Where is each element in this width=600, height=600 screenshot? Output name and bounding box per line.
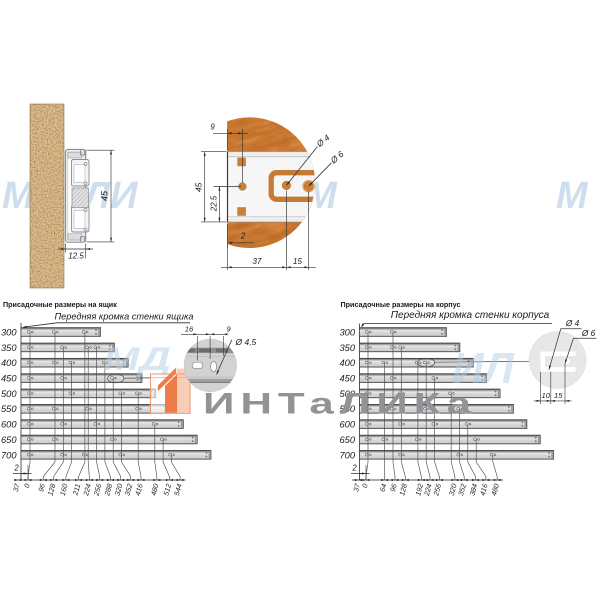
svg-text:300: 300 <box>1 328 17 338</box>
svg-text:9: 9 <box>226 324 231 333</box>
svg-text:Передняя кромка стенки корпуса: Передняя кромка стенки корпуса <box>391 310 550 321</box>
svg-text:128: 128 <box>46 483 58 497</box>
svg-text:352: 352 <box>456 483 468 497</box>
svg-text:9: 9 <box>210 123 215 132</box>
svg-text:22.5: 22.5 <box>209 195 218 212</box>
svg-text:450: 450 <box>1 374 17 384</box>
svg-text:0: 0 <box>360 483 370 489</box>
svg-text:400: 400 <box>339 358 355 368</box>
svg-text:416: 416 <box>133 483 145 497</box>
svg-text:416: 416 <box>478 483 490 497</box>
svg-text:350: 350 <box>339 343 355 353</box>
svg-text:Ø 6: Ø 6 <box>581 328 596 338</box>
svg-text:М: М <box>556 175 589 217</box>
svg-text:Ø 4: Ø 4 <box>565 318 580 328</box>
svg-text:600: 600 <box>1 420 17 430</box>
svg-text:37: 37 <box>11 482 22 493</box>
svg-text:10: 10 <box>541 391 550 400</box>
svg-text:96: 96 <box>36 483 47 493</box>
svg-text:37: 37 <box>253 257 262 266</box>
svg-text:12.5: 12.5 <box>68 252 84 261</box>
svg-text:224: 224 <box>81 483 93 498</box>
svg-text:2: 2 <box>240 231 246 240</box>
svg-text:350: 350 <box>1 343 17 353</box>
svg-text:Ø 4,5: Ø 4,5 <box>235 337 257 347</box>
svg-text:256: 256 <box>431 483 443 498</box>
svg-text:256: 256 <box>91 483 103 498</box>
svg-text:Ø 4: Ø 4 <box>314 132 332 149</box>
svg-text:64: 64 <box>378 483 389 493</box>
svg-text:480: 480 <box>489 483 501 497</box>
svg-text:400: 400 <box>1 358 17 368</box>
svg-text:Передняя кромка стенки ящика: Передняя кромка стенки ящика <box>55 312 194 322</box>
svg-text:0: 0 <box>22 483 32 489</box>
svg-text:550: 550 <box>1 404 17 414</box>
svg-text:288: 288 <box>102 483 114 498</box>
svg-text:16: 16 <box>185 324 194 333</box>
svg-text:ИЛ: ИЛ <box>452 344 515 393</box>
svg-text:650: 650 <box>1 435 17 445</box>
svg-text:450: 450 <box>339 374 355 384</box>
svg-text:МД: МД <box>103 341 171 377</box>
svg-text:128: 128 <box>397 483 409 497</box>
svg-text:2: 2 <box>351 463 357 472</box>
svg-text:Присадочные размеры на корпус: Присадочные размеры на корпус <box>341 300 461 309</box>
svg-text:Присадочные размеры на ящик: Присадочные размеры на ящик <box>3 300 117 309</box>
svg-text:700: 700 <box>1 450 17 460</box>
svg-text:45: 45 <box>100 190 110 201</box>
svg-text:600: 600 <box>339 420 355 430</box>
svg-text:2: 2 <box>13 463 19 472</box>
svg-text:544: 544 <box>172 483 184 497</box>
svg-text:160: 160 <box>58 483 70 497</box>
svg-text:650: 650 <box>339 435 355 445</box>
svg-text:480: 480 <box>149 483 161 497</box>
svg-text:15: 15 <box>554 391 563 400</box>
svg-text:300: 300 <box>339 328 355 338</box>
svg-text:500: 500 <box>1 389 17 399</box>
svg-text:45: 45 <box>194 182 204 192</box>
svg-text:ИНТаЛИКа: ИНТаЛИКа <box>203 388 477 421</box>
svg-text:700: 700 <box>339 450 355 460</box>
svg-text:15: 15 <box>293 257 302 266</box>
svg-text:ЛИ: ЛИ <box>81 175 138 217</box>
